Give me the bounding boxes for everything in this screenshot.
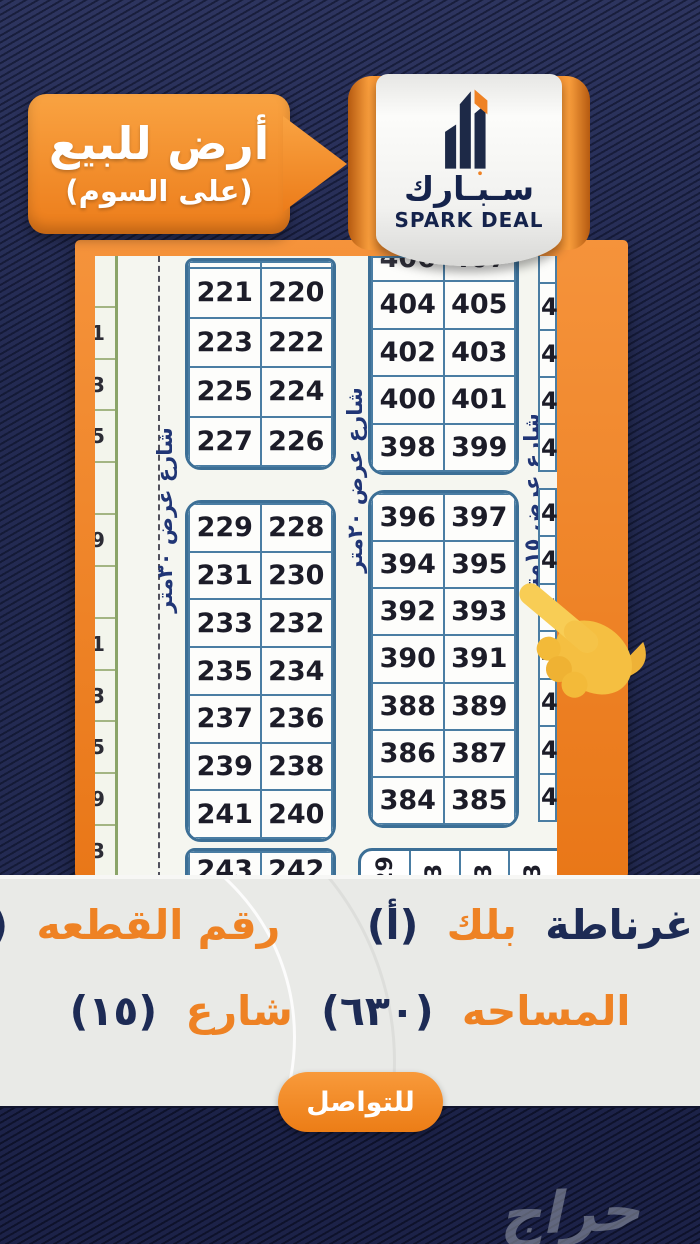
plot-row: 384385	[371, 776, 516, 825]
plot-cell: 404	[371, 280, 445, 330]
plot-cell: 229	[188, 503, 262, 553]
plot-row: 392393	[371, 587, 516, 636]
plot-cell: 220	[260, 267, 334, 319]
plot-row: 404405	[371, 280, 516, 330]
plot-cell: 224	[260, 366, 334, 418]
company-ribbon: سـبـارك SPARK DEAL	[348, 74, 590, 266]
plot-row: 243242	[188, 851, 333, 878]
plot-cell: 240	[260, 789, 334, 839]
plot-fragment: 4	[538, 282, 557, 331]
plot-cell: 226	[260, 416, 334, 468]
sale-banner: أرض للبيع (على السوم)	[28, 94, 290, 234]
contact-button[interactable]: للتواصل	[278, 1072, 443, 1132]
plot-fragment: 1	[95, 619, 115, 671]
banner-arrow-shape	[283, 116, 347, 212]
plot-cell: 238	[260, 742, 334, 792]
plot-fragment	[95, 463, 115, 515]
ribbon-body: سـبـارك SPARK DEAL	[376, 74, 562, 266]
plot-row: 223222	[188, 317, 333, 369]
district-name: غرناطة	[545, 901, 693, 949]
plot-cell: 227	[188, 416, 262, 468]
plot-block-left-group2: 2292282312302332322352342372362392382412…	[185, 500, 336, 842]
plot-fragment: 3	[95, 360, 115, 412]
plot-cell: 222	[260, 317, 334, 369]
detail-line-area: المساحه (٦٣٠) شارع (١٥)	[0, 987, 700, 1035]
sale-banner-title: أرض للبيع	[49, 120, 269, 167]
plot-row: 241240	[188, 789, 333, 839]
plot-cell: 396	[371, 493, 445, 542]
plot-fragment: 3	[510, 851, 557, 878]
plot-row: 400401	[371, 375, 516, 425]
plot-cell: 228	[260, 503, 334, 553]
plot-row: 386387	[371, 729, 516, 778]
area-label: المساحه	[462, 987, 630, 1035]
plot-fragment: 1	[95, 308, 115, 360]
plot-cell: 390	[371, 634, 445, 683]
plot-fragment: 4	[538, 329, 557, 378]
plot-cell: 242	[260, 851, 334, 878]
street-label-20m: شارع عرض ٢٠متر	[342, 385, 368, 575]
block-value: (أ)	[367, 901, 419, 949]
plot-cell: 235	[188, 646, 262, 696]
plot-cell: 221	[188, 267, 262, 319]
plot-cell: 403	[443, 328, 517, 378]
plot-block-bottom-fragments: 29333	[358, 848, 557, 878]
spark-deal-buildings-icon	[421, 84, 517, 176]
plot-block-left-group1: 221220223222225224227226	[185, 258, 336, 470]
plot-cell: 231	[188, 551, 262, 601]
plot-cell: 223	[188, 317, 262, 369]
plot-row: 396397	[371, 493, 516, 542]
plot-cell: 230	[260, 551, 334, 601]
haraj-watermark: حراج	[497, 1176, 652, 1244]
plot-column-right-sliver-top: 4444	[538, 256, 557, 472]
plot-cell: 241	[188, 789, 262, 839]
plot-row: 227226	[188, 416, 333, 468]
plot-cell: 402	[371, 328, 445, 378]
pointing-hand-icon	[498, 583, 648, 713]
plot-row: 231230	[188, 551, 333, 601]
plot-cell: 237	[188, 694, 262, 744]
plot-cell: 232	[260, 598, 334, 648]
plot-cell: 401	[443, 375, 517, 425]
advert-poster: أرض للبيع (على السوم) سـبـارك SPARK DEAL…	[0, 0, 700, 1244]
plot-cell: 400	[371, 375, 445, 425]
area-value: (٦٣٠)	[321, 987, 434, 1035]
plot-fragment: 5	[95, 722, 115, 774]
plot-row: 237236	[188, 694, 333, 744]
plot-fragment	[95, 256, 115, 308]
plot-cell: 233	[188, 598, 262, 648]
plot-fragment: 3	[461, 851, 511, 878]
plot-cell: 387	[443, 729, 517, 778]
plot-cell: 386	[371, 729, 445, 778]
plot-row: 390391	[371, 634, 516, 683]
plot-cell: 397	[443, 493, 517, 542]
plot-cell: 405	[443, 280, 517, 330]
street-label-30m: شارع عرض ٣٠متر	[152, 425, 178, 615]
plot-cell: 394	[371, 540, 445, 589]
plot-row: 225224	[188, 366, 333, 418]
plot-fragment: 3	[411, 851, 461, 878]
detail-line-block: غرناطة بلك (أ) رقم القطعه (٣٨٩)	[0, 901, 700, 949]
plot-cell: 399	[443, 423, 517, 473]
plot-row: 229228	[188, 503, 333, 553]
plot-fragment	[95, 567, 115, 619]
plot-fragment: 4	[538, 376, 557, 425]
plot-block-left-group3: 243242	[185, 848, 336, 878]
plot-number-label: رقم القطعه	[36, 901, 280, 949]
plot-cell: 239	[188, 742, 262, 792]
plot-fragment: 3	[95, 671, 115, 723]
plot-row: 388389	[371, 682, 516, 731]
plot-fragment: 9	[95, 515, 115, 567]
plot-fragment: 9	[95, 774, 115, 826]
plot-row: 233232	[188, 598, 333, 648]
logo-name-arabic: سـبـارك	[404, 172, 534, 205]
plot-cell: 225	[188, 366, 262, 418]
plot-fragment: 29	[361, 851, 411, 878]
street-label: شارع	[185, 987, 292, 1035]
plot-row: 221220	[188, 267, 333, 319]
plot-fragment: 3	[95, 826, 115, 878]
plot-cell: 385	[443, 776, 517, 825]
sale-banner-subtitle: (على السوم)	[65, 174, 252, 208]
plot-fragment: 4	[538, 773, 557, 822]
plot-block-middle-groupA: 406407404405402403400401398399	[368, 256, 519, 475]
plot-row: 398399	[371, 423, 516, 473]
street-value: (١٥)	[70, 987, 158, 1035]
plot-cell: 234	[260, 646, 334, 696]
plot-fragment: 4	[538, 488, 557, 537]
plot-fragment: 4	[538, 725, 557, 774]
plot-number-value: (٣٨٩)	[0, 901, 8, 949]
plot-cell: 388	[371, 682, 445, 731]
plot-cell: 398	[371, 423, 445, 473]
plot-cell: 243	[188, 851, 262, 878]
plot-fragment: 4	[538, 423, 557, 472]
plot-fragment: 4	[538, 535, 557, 584]
left-green-strip: 135913593	[95, 256, 118, 878]
plot-cell: 395	[443, 540, 517, 589]
plot-cell: 384	[371, 776, 445, 825]
logo-name-english: SPARK DEAL	[394, 208, 543, 232]
plot-row: 235234	[188, 646, 333, 696]
plat-map: 135913593 شارع عرض ٣٠متر شارع عرض ٢٠متر …	[95, 256, 557, 878]
plot-block-middle-groupB: 3963973943953923933903913883893863873843…	[368, 490, 519, 828]
plot-row: 402403	[371, 328, 516, 378]
block-label: بلك	[447, 901, 517, 949]
plot-row: 394395	[371, 540, 516, 589]
plot-row: 239238	[188, 742, 333, 792]
plot-fragment: 5	[95, 411, 115, 463]
plot-cell: 392	[371, 587, 445, 636]
plot-cell: 236	[260, 694, 334, 744]
